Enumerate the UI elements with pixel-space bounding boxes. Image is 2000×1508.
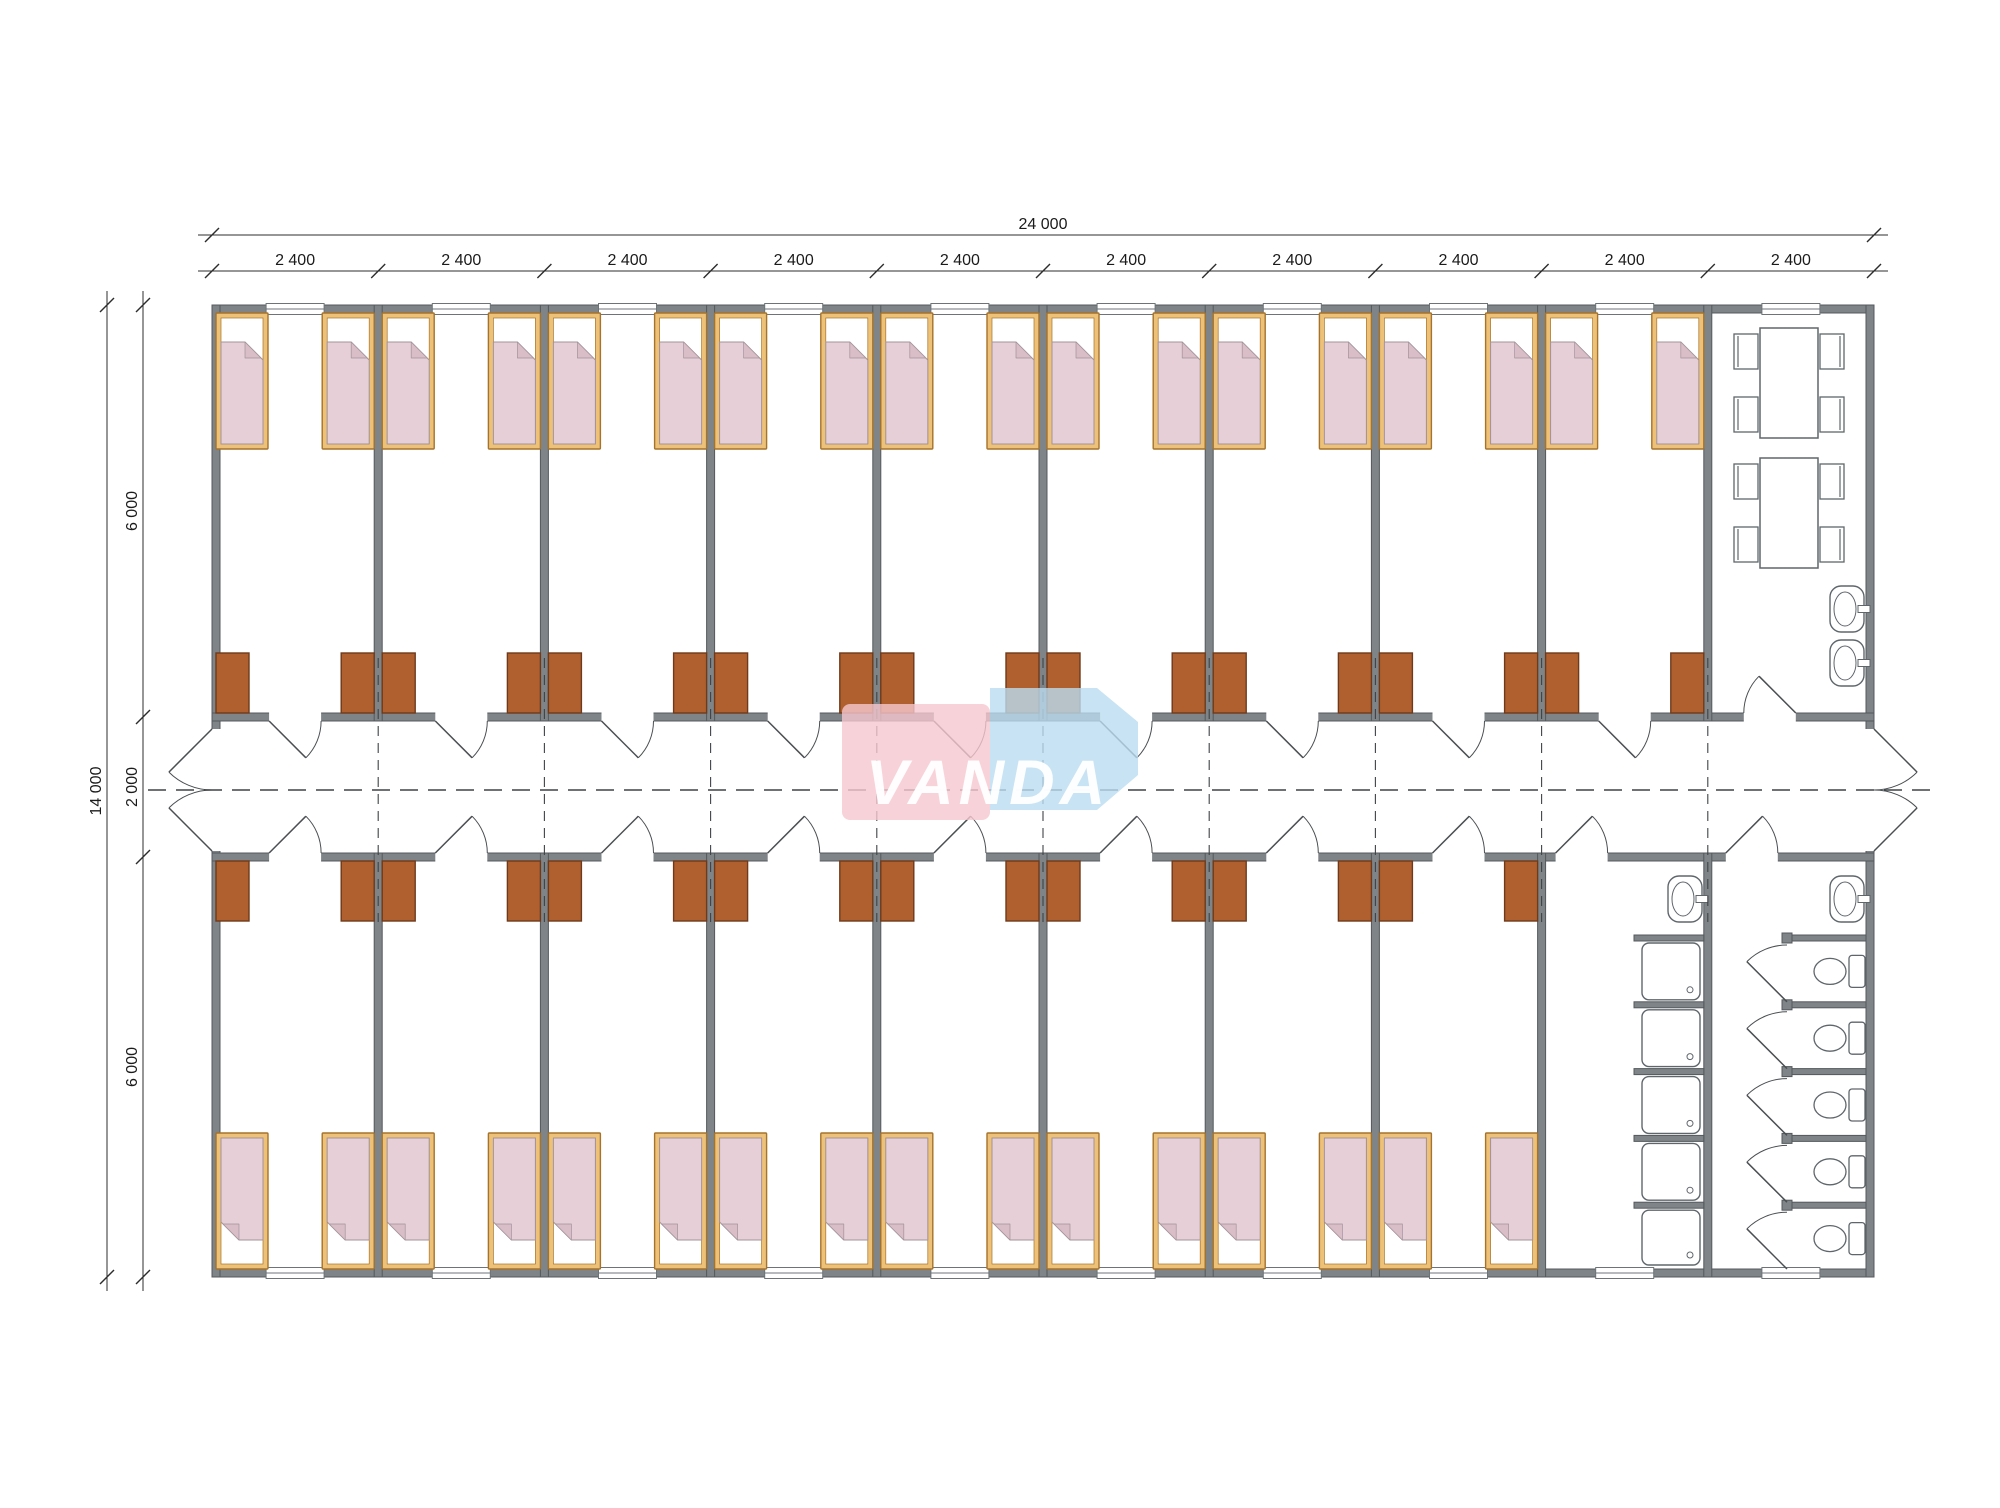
wardrobe <box>548 861 581 921</box>
door-opening <box>269 852 321 862</box>
toilet-tank <box>1849 955 1865 987</box>
toilet-tank <box>1849 1022 1865 1054</box>
door-leaf <box>435 816 472 853</box>
door-leaf <box>1100 816 1137 853</box>
dimension-label-module: 2 400 <box>774 252 814 269</box>
door-swing-arc <box>638 816 653 853</box>
bed <box>322 313 374 449</box>
wardrobe <box>507 861 540 921</box>
wardrobe <box>1172 861 1205 921</box>
shower-divider-stub <box>1634 935 1704 941</box>
wardrobe <box>1505 653 1538 713</box>
wardrobe <box>1546 653 1579 713</box>
door-leaf <box>1433 721 1470 758</box>
door-leaf <box>768 721 805 758</box>
shower-tray <box>1642 1210 1700 1265</box>
dimension-label-total-height: 14 000 <box>88 766 105 815</box>
bed <box>1213 1133 1265 1269</box>
bed <box>1213 313 1265 449</box>
bed <box>1319 1133 1371 1269</box>
door-swing-arc <box>1874 772 1917 790</box>
door-swing-arc <box>1137 816 1152 853</box>
bed <box>987 1133 1039 1269</box>
door-opening <box>1599 712 1651 722</box>
bed <box>881 1133 933 1269</box>
wardrobe <box>1505 861 1538 921</box>
dimension-label-height-segment: 6 000 <box>124 491 141 531</box>
shower-tray <box>1642 943 1700 1000</box>
toilet-bowl <box>1814 1226 1846 1252</box>
bed <box>322 1133 374 1269</box>
wardrobe <box>1379 861 1412 921</box>
door-opening <box>1433 712 1485 722</box>
bed <box>216 313 268 449</box>
door-swing-arc <box>1303 721 1318 758</box>
door-opening <box>1100 852 1152 862</box>
wardrobe <box>674 653 707 713</box>
dimension-label-module: 2 400 <box>1438 252 1478 269</box>
shower-tray-rect <box>1642 943 1700 1000</box>
wash-basin <box>1668 876 1708 922</box>
shower-tray <box>1642 1143 1700 1200</box>
door-leaf <box>169 808 212 851</box>
door-opening <box>1726 852 1778 862</box>
bed <box>1379 313 1431 449</box>
door-leaf <box>1433 816 1470 853</box>
door-opening <box>1556 852 1608 862</box>
wash-basin <box>1830 640 1870 686</box>
door-leaf <box>602 721 639 758</box>
door-swing-arc <box>1137 721 1152 758</box>
dining-table <box>1760 458 1818 568</box>
bed <box>821 313 873 449</box>
bed <box>382 313 434 449</box>
dimension-label-module: 2 400 <box>1272 252 1312 269</box>
toilet <box>1814 1223 1865 1255</box>
toilet-stall-divider <box>1791 935 1866 941</box>
door-swing-arc <box>638 721 653 758</box>
wardrobe <box>1338 861 1371 921</box>
bed <box>488 1133 540 1269</box>
dimension-label-module: 2 400 <box>1771 252 1811 269</box>
bed <box>715 313 767 449</box>
dimension-label-module: 2 400 <box>1605 252 1645 269</box>
dimension-label-total-width: 24 000 <box>1019 216 1068 233</box>
bed <box>1153 1133 1205 1269</box>
wardrobe <box>715 653 748 713</box>
bed <box>382 1133 434 1269</box>
door-swing-arc <box>1592 816 1607 853</box>
door-leaf <box>1556 816 1593 853</box>
toilet-stall-divider <box>1791 1135 1866 1141</box>
basin-tap <box>1858 896 1870 903</box>
basin-tap <box>1696 896 1708 903</box>
wash-basin <box>1830 586 1870 632</box>
wardrobe <box>1671 653 1704 713</box>
wardrobe <box>1338 653 1371 713</box>
door-opening <box>768 852 820 862</box>
door-swing-arc <box>1747 1145 1787 1162</box>
door-leaf <box>1874 808 1917 851</box>
basin-tap <box>1858 606 1870 613</box>
door-opening <box>602 852 654 862</box>
wardrobe <box>341 861 374 921</box>
toilet <box>1814 1156 1865 1188</box>
door-opening <box>1433 852 1485 862</box>
toilet <box>1814 1022 1865 1054</box>
door-leaf <box>934 816 971 853</box>
door-swing-arc <box>1747 1012 1787 1029</box>
door-opening <box>934 852 986 862</box>
dimension-label-module: 2 400 <box>1106 252 1146 269</box>
shower-divider-stub <box>1634 1069 1704 1075</box>
door-leaf <box>1747 1162 1787 1202</box>
door-swing-arc <box>169 772 212 790</box>
door-opening <box>435 852 487 862</box>
wardrobe <box>715 861 748 921</box>
toilet-tank <box>1849 1089 1865 1121</box>
door-swing-arc <box>1763 816 1778 853</box>
door-opening <box>1744 712 1796 722</box>
bed <box>488 313 540 449</box>
door-leaf <box>1759 676 1796 713</box>
door-leaf <box>269 721 306 758</box>
bed <box>1047 313 1099 449</box>
bed <box>655 313 707 449</box>
bed <box>548 1133 600 1269</box>
dimension-label-height-segment: 2 000 <box>124 767 141 807</box>
bed <box>548 313 600 449</box>
door-swing-arc <box>306 816 321 853</box>
shower-tray <box>1642 1077 1700 1134</box>
bed <box>216 1133 268 1269</box>
wardrobe <box>1213 653 1246 713</box>
bed <box>821 1133 873 1269</box>
door-swing-arc <box>1469 816 1484 853</box>
door-swing-arc <box>169 790 212 808</box>
bed <box>655 1133 707 1269</box>
bed <box>1153 313 1205 449</box>
door-swing-arc <box>306 721 321 758</box>
door-swing-arc <box>472 721 487 758</box>
dimension-label-module: 2 400 <box>940 252 980 269</box>
toilet-stall-divider <box>1791 1202 1866 1208</box>
toilet <box>1814 955 1865 987</box>
door-opening <box>269 712 321 722</box>
toilet-tank <box>1849 1223 1865 1255</box>
door-leaf <box>1599 721 1636 758</box>
door-opening <box>768 712 820 722</box>
toilet-bowl <box>1814 1025 1846 1051</box>
toilet-stall-divider <box>1791 1069 1866 1075</box>
door-swing-arc <box>1744 676 1759 713</box>
wardrobe <box>881 861 914 921</box>
dining-table <box>1760 328 1818 438</box>
door-swing-arc <box>1303 816 1318 853</box>
toilet <box>1814 1089 1865 1121</box>
door-leaf <box>602 816 639 853</box>
shower-tray-rect <box>1642 1210 1700 1265</box>
shower-divider-stub <box>1634 1135 1704 1141</box>
shower-tray-rect <box>1642 1077 1700 1134</box>
door-opening <box>1266 712 1318 722</box>
wash-basin <box>1830 876 1870 922</box>
door-opening <box>1266 852 1318 862</box>
floor-plan-drawing: 24 0002 4002 4002 4002 4002 4002 4002 40… <box>0 0 2000 1508</box>
door-leaf <box>1874 729 1917 772</box>
wardrobe <box>216 861 249 921</box>
bed <box>1546 313 1598 449</box>
door-leaf <box>1747 1028 1787 1068</box>
bed <box>715 1133 767 1269</box>
bed <box>1047 1133 1099 1269</box>
door-leaf <box>1266 816 1303 853</box>
shower-divider-stub <box>1634 1202 1704 1208</box>
wardrobe <box>507 653 540 713</box>
dimension-label-module: 2 400 <box>607 252 647 269</box>
basin-tap <box>1858 660 1870 667</box>
bed <box>1379 1133 1431 1269</box>
toilet-tank <box>1849 1156 1865 1188</box>
bed <box>1652 313 1704 449</box>
dimension-label-module: 2 400 <box>275 252 315 269</box>
shower-tray-rect <box>1642 1010 1700 1067</box>
wardrobe <box>382 653 415 713</box>
wardrobe <box>341 653 374 713</box>
door-swing-arc <box>1636 721 1651 758</box>
door-swing-arc <box>472 816 487 853</box>
door-swing-arc <box>971 816 986 853</box>
wardrobe <box>674 861 707 921</box>
door-swing-arc <box>805 721 820 758</box>
bed <box>1486 1133 1538 1269</box>
bed <box>1319 313 1371 449</box>
door-swing-arc <box>1747 1079 1787 1096</box>
toilet-stall-post <box>1782 933 1792 943</box>
door-swing-arc <box>1747 945 1787 962</box>
door-leaf <box>435 721 472 758</box>
wardrobe <box>1379 653 1412 713</box>
door-leaf <box>1726 816 1763 853</box>
door-swing-arc <box>1874 790 1917 808</box>
toilet-bowl <box>1814 1159 1846 1185</box>
dimension-label-module: 2 400 <box>441 252 481 269</box>
wardrobe <box>840 861 873 921</box>
door-leaf <box>1266 721 1303 758</box>
bed <box>987 313 1039 449</box>
wardrobe <box>1006 861 1039 921</box>
shower-tray <box>1642 1010 1700 1067</box>
floor-plan-canvas: 24 0002 4002 4002 4002 4002 4002 4002 40… <box>0 0 2000 1508</box>
door-leaf <box>269 816 306 853</box>
door-swing-arc <box>805 816 820 853</box>
door-swing-arc <box>1747 1212 1787 1229</box>
toilet-bowl <box>1814 958 1846 984</box>
bed <box>1486 313 1538 449</box>
shower-divider-stub <box>1634 1002 1704 1008</box>
fixtures-layer <box>1642 328 1870 1265</box>
door-leaf <box>768 816 805 853</box>
wardrobe <box>216 653 249 713</box>
door-leaf <box>1747 1229 1787 1269</box>
watermark-logo: VANDA <box>842 688 1138 820</box>
door-leaf <box>169 729 212 772</box>
wardrobe <box>1172 653 1205 713</box>
wardrobe <box>548 653 581 713</box>
toilet-bowl <box>1814 1092 1846 1118</box>
dimension-label-height-segment: 6 000 <box>124 1047 141 1087</box>
door-opening <box>602 712 654 722</box>
door-leaf <box>1747 1095 1787 1135</box>
wardrobe <box>382 861 415 921</box>
wardrobe <box>1047 861 1080 921</box>
wardrobe <box>1213 861 1246 921</box>
bed <box>881 313 933 449</box>
watermark-text: VANDA <box>866 748 1110 818</box>
door-swing-arc <box>1469 721 1484 758</box>
shower-tray-rect <box>1642 1143 1700 1200</box>
toilet-stall-divider <box>1791 1002 1866 1008</box>
door-leaf <box>1747 962 1787 1002</box>
door-opening <box>435 712 487 722</box>
